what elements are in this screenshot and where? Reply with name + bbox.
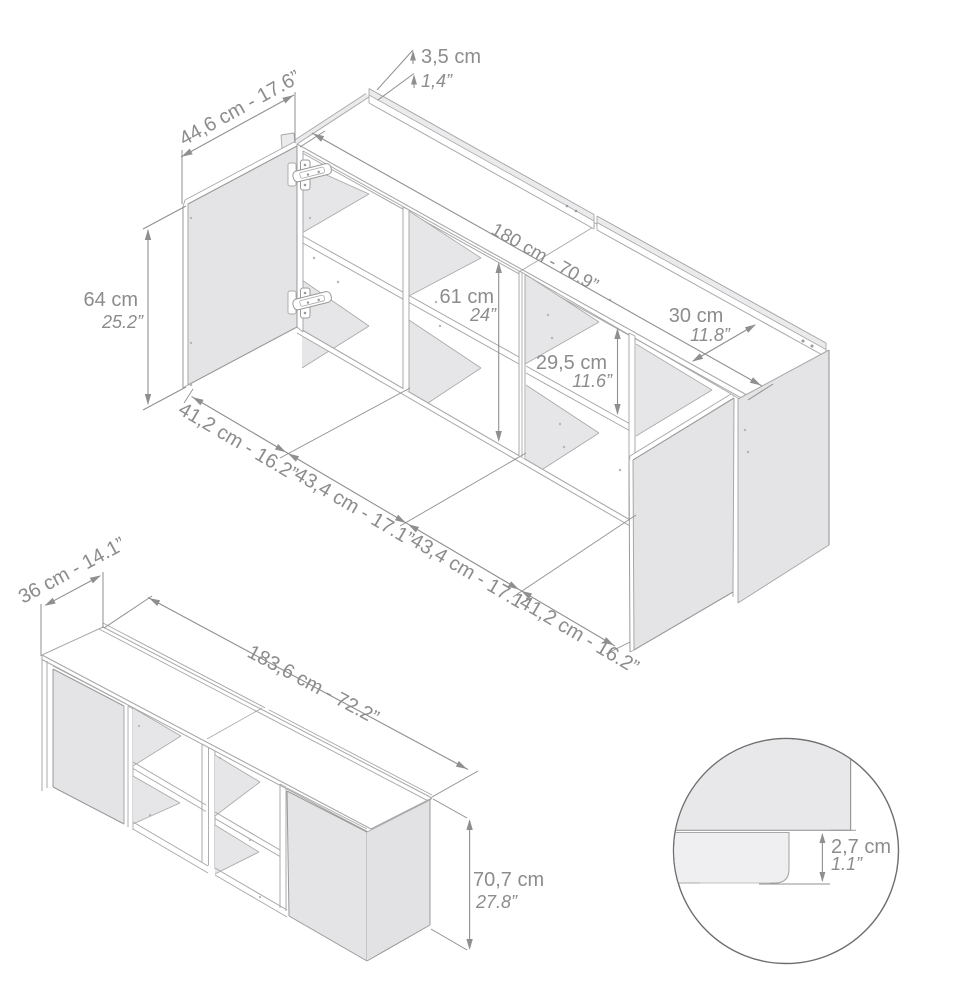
svg-text:1,4”: 1,4”	[421, 71, 453, 91]
svg-text:24”: 24”	[469, 305, 497, 325]
svg-text:64 cm: 64 cm	[84, 289, 138, 311]
svg-text:11.8”: 11.8”	[690, 325, 731, 345]
svg-text:70,7 cm: 70,7 cm	[473, 869, 544, 891]
svg-text:3,5 cm: 3,5 cm	[421, 46, 481, 68]
svg-text:27.8”: 27.8”	[475, 892, 518, 912]
svg-text:30 cm: 30 cm	[669, 305, 723, 327]
svg-text:1.1”: 1.1”	[831, 854, 863, 874]
svg-text:25.2”: 25.2”	[101, 312, 144, 332]
svg-text:11.6”: 11.6”	[572, 371, 613, 391]
